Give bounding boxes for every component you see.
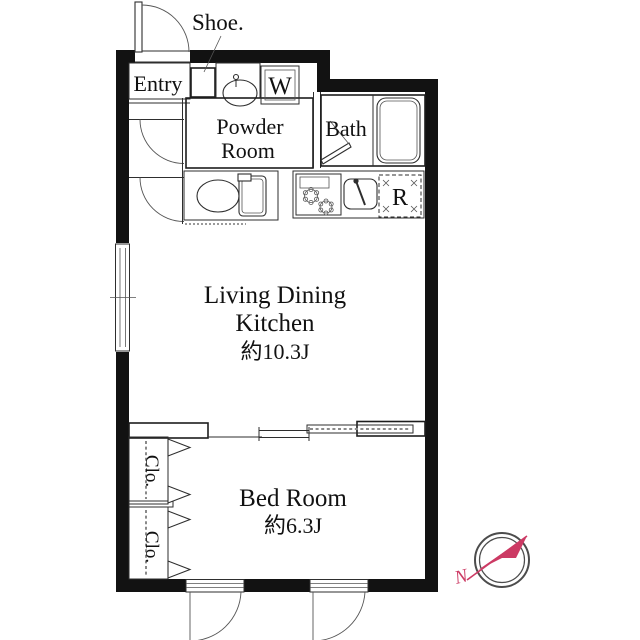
powder-door-swing-arc (140, 120, 184, 164)
powder-room: Powder Room (186, 63, 313, 168)
ldk-size-label: 約10.3J (240, 339, 310, 364)
bedroom-room: Bed Room 約6.3J (239, 485, 347, 538)
washer-label: W (268, 73, 292, 100)
entry-door (135, 2, 190, 62)
closet-lower-label: Clo. (141, 531, 162, 563)
toilet-door-swing-arc (140, 178, 184, 222)
refrigerator-space: R (379, 175, 421, 217)
stove-icon (296, 174, 341, 215)
kitchen-sink-icon (344, 178, 377, 209)
closets: Clo. Clo. (129, 437, 190, 579)
toilet-room (184, 171, 278, 220)
compass-north-label: N (452, 565, 472, 589)
floor-plan-page: Entry Shoe. Powder Room W (0, 0, 640, 640)
fridge-label: R (392, 185, 408, 211)
ldk-label-1: Living Dining (204, 282, 347, 309)
compass: N (452, 533, 529, 589)
bathroom-sink-icon (223, 75, 257, 107)
entry-label: Entry (134, 71, 183, 96)
ldk-label-2: Kitchen (235, 310, 315, 337)
closet-upper-label: Clo. (141, 455, 162, 487)
entry-door-leaf (135, 2, 142, 52)
powder-room-label-2: Room (221, 138, 275, 163)
bottom-window-right (310, 580, 368, 640)
shoe-label: Shoe. (192, 10, 244, 35)
bottom-window-left (186, 580, 244, 640)
ldk-room: Living Dining Kitchen 約10.3J (204, 282, 347, 364)
toilet-icon (197, 174, 266, 216)
powder-room-label-1: Powder (216, 114, 284, 139)
entry-door-swing-arc (142, 5, 189, 52)
bedroom-label: Bed Room (239, 485, 347, 512)
entry-area: Entry (129, 63, 190, 103)
hall-doors (129, 98, 184, 224)
bath-label: Bath (325, 116, 367, 141)
floor-plan-drawing: Entry Shoe. Powder Room W (0, 0, 640, 640)
bath-room: Bath (314, 92, 426, 168)
bedroom-partition (129, 422, 425, 442)
closet-folding-doors (168, 439, 190, 578)
bathtub-icon (377, 98, 420, 163)
sliding-door (259, 425, 413, 441)
kitchen-counter: R (293, 171, 424, 218)
left-window (110, 244, 136, 351)
bedroom-size-label: 約6.3J (264, 513, 323, 538)
